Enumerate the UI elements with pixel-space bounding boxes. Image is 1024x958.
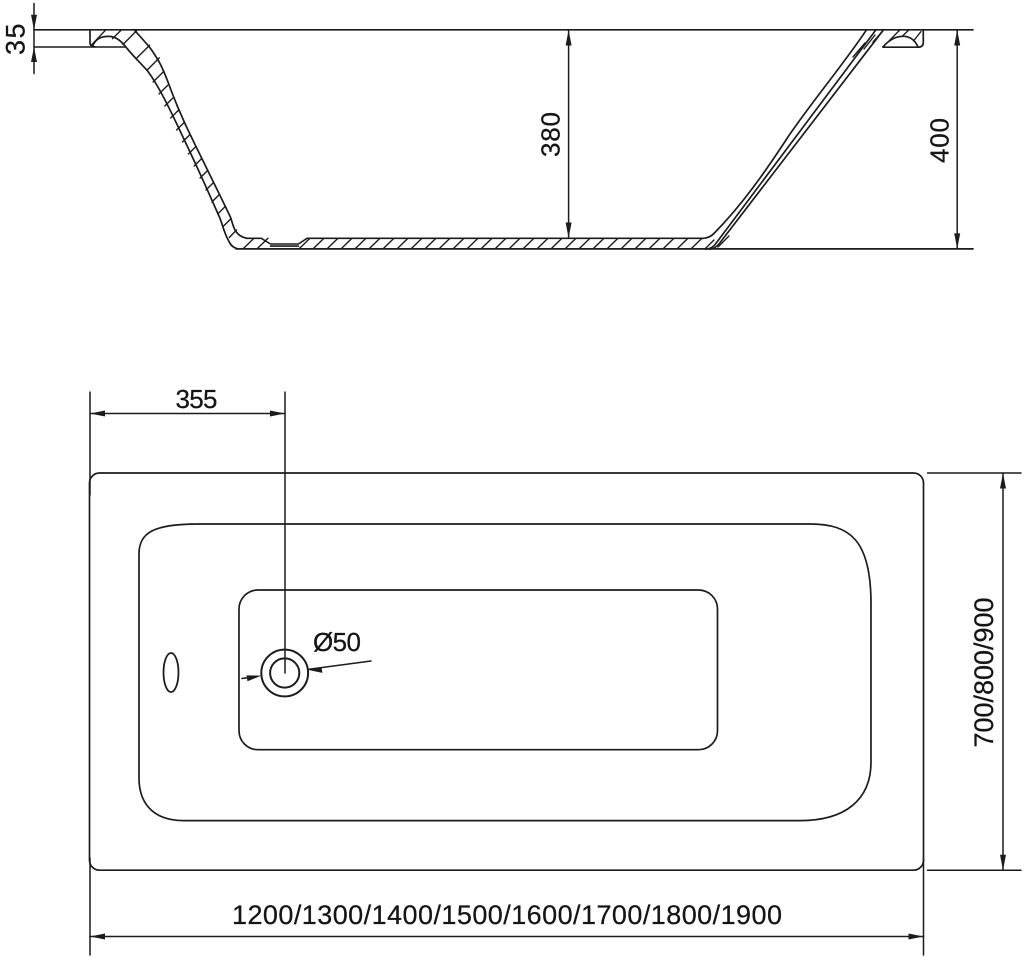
svg-text:355: 355 <box>176 384 218 414</box>
svg-text:380: 380 <box>536 112 566 157</box>
svg-text:400: 400 <box>925 118 955 163</box>
svg-text:35: 35 <box>1 24 31 56</box>
svg-text:1200/1300/1400/1500/1600/1700/: 1200/1300/1400/1500/1600/1700/1800/1900 <box>232 900 782 930</box>
svg-text:700/800/900: 700/800/900 <box>969 598 999 748</box>
svg-text:Ø50: Ø50 <box>313 627 361 657</box>
